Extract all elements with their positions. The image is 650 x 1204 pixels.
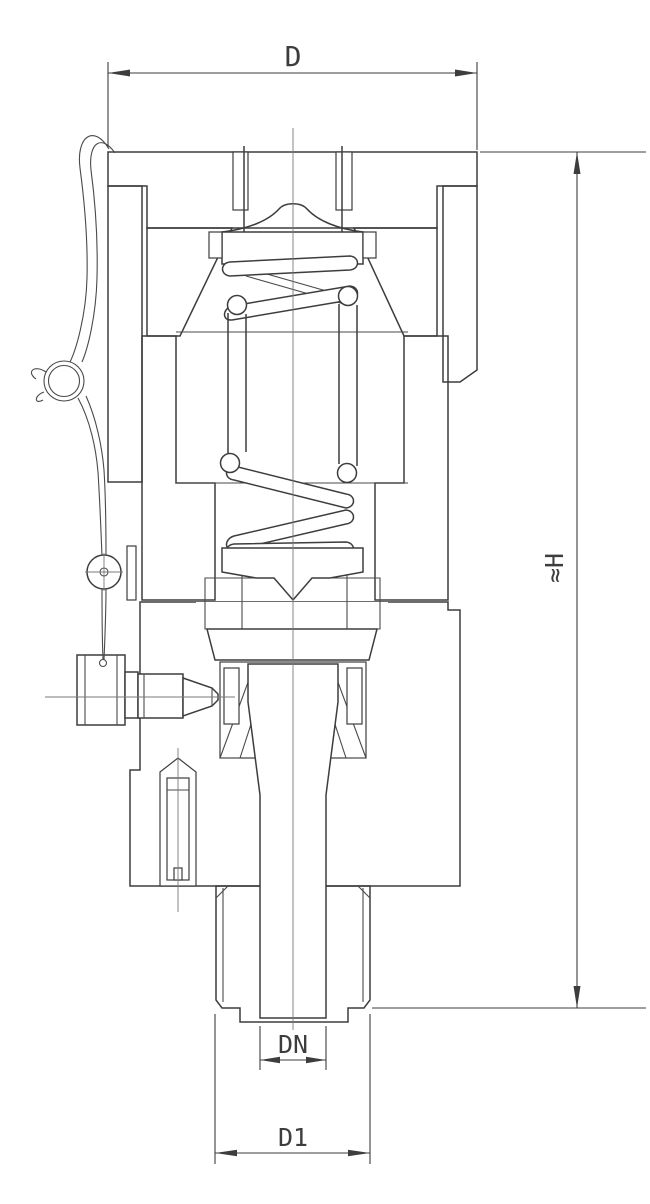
arrowhead-left — [108, 70, 130, 77]
wall-tab — [127, 546, 136, 600]
dimension-h-label: ≈H — [540, 553, 569, 583]
guide-ring — [224, 668, 239, 724]
valve-cross-section-canvas: D ≈H DN D1 — [0, 0, 650, 1204]
spring-assembly — [209, 204, 376, 558]
spring-wire-end — [221, 454, 240, 473]
drain-port — [160, 748, 196, 912]
spring-coil — [227, 466, 354, 508]
cap-section — [108, 152, 477, 228]
spring-wire-end — [228, 296, 247, 315]
dimension-dn: DN — [260, 1026, 326, 1070]
upper-plate-ear — [209, 232, 222, 258]
arrowhead-right — [455, 70, 477, 77]
seal-ring-hook — [31, 369, 46, 402]
dimension-d1-label: D1 — [278, 1123, 308, 1152]
seal-wire — [86, 396, 106, 556]
dimension-dn-label: DN — [278, 1030, 308, 1059]
spring-wire-end — [338, 464, 357, 483]
safety-valve-technical-drawing: D ≈H DN D1 — [0, 0, 650, 1204]
cap-bolt-slot — [336, 152, 352, 210]
seal-wire — [70, 136, 109, 362]
valve-cap — [108, 146, 477, 482]
arrowhead-up — [574, 152, 581, 174]
seal-disc-crosshair — [85, 553, 123, 591]
seal-wire — [102, 589, 106, 660]
seal-wire — [78, 398, 102, 556]
arrowhead-left — [215, 1150, 237, 1156]
spring-wire-end — [339, 287, 358, 306]
bonnet-wall-left — [142, 336, 215, 600]
cap-bolt-slot — [233, 152, 248, 210]
seal-ring — [44, 361, 84, 401]
guide-ring — [347, 668, 362, 724]
arrowhead-right — [348, 1150, 370, 1156]
arrowhead-down — [574, 986, 581, 1008]
plug-barrel — [138, 674, 183, 718]
lower-spring-plate — [222, 548, 363, 600]
seal-ring — [49, 366, 80, 397]
upper-plate-ear — [363, 232, 376, 258]
plug-neck — [125, 672, 138, 718]
spring-recess — [196, 602, 388, 660]
dimension-d: D — [108, 40, 477, 150]
lead-seal-assembly — [31, 136, 136, 660]
dimension-h: ≈H — [372, 152, 646, 1008]
bonnet-wall-right — [375, 336, 448, 600]
arrowhead-right — [306, 1057, 326, 1063]
dimension-d-label: D — [285, 40, 302, 73]
cap-left-skirt — [108, 186, 142, 482]
extension-line — [108, 62, 477, 150]
